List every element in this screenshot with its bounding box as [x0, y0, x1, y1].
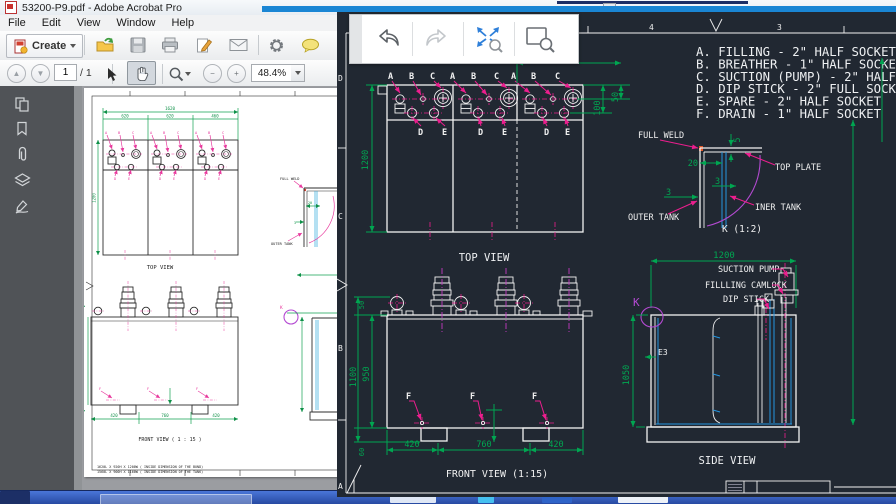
svg-text:A: A: [450, 72, 455, 82]
top-plate-label: TOP PLATE: [775, 163, 821, 173]
svg-text:A: A: [195, 131, 198, 135]
create-label: Create: [32, 40, 66, 52]
pdf-dim-420b: 420: [212, 413, 220, 418]
dim-side-width: 1200: [713, 251, 735, 261]
dim-front-h1: 1100: [349, 367, 359, 387]
print-button[interactable]: [157, 34, 183, 56]
magnifier-icon: [168, 66, 185, 82]
cad-top-view-ports: ABC ABC ABC DE DE DE: [388, 72, 571, 138]
create-caret-icon: [70, 44, 76, 48]
svg-text:E: E: [502, 128, 507, 138]
pdf-notes: 1620L X 920H X 1200W ( INSIDE DIMENSION …: [97, 465, 203, 474]
attachments-panel-button[interactable]: [7, 142, 37, 166]
zoom-out-button[interactable]: −: [203, 64, 222, 83]
window-title: 53200-P9.pdf - Adobe Acrobat Pro: [22, 2, 182, 14]
undo-icon: [372, 26, 402, 52]
undo-button[interactable]: [362, 19, 412, 59]
filling-camlock-label: FILLLING CAMLOCK: [705, 281, 788, 291]
dim-top-height: 1200: [361, 150, 371, 170]
legend-line: F. DRAIN - 1" HALF SOCKET: [696, 107, 882, 121]
pdf-f-label: F: [147, 387, 149, 391]
svg-text:E: E: [128, 177, 130, 181]
zoom-in-button[interactable]: +: [227, 64, 246, 83]
tools-button[interactable]: [263, 34, 289, 56]
svg-text:C: C: [555, 72, 560, 82]
pdf-dim-seg3: 460: [211, 114, 219, 119]
zone-letter: D: [338, 74, 343, 83]
svg-text:A: A: [150, 131, 153, 135]
detail-k-marker: K: [633, 296, 640, 309]
cad-top-view-label: TOP VIEW: [459, 252, 510, 264]
envelope-icon: [229, 38, 248, 52]
create-doc-icon: [13, 39, 28, 54]
inner-tank-label: INER TANK: [755, 203, 802, 213]
outer-tank-label: OUTER TANK: [628, 213, 680, 223]
create-button[interactable]: Create: [6, 34, 83, 58]
save-icon: [130, 37, 146, 53]
dim-20: 20: [688, 159, 698, 169]
menu-window[interactable]: Window: [108, 17, 163, 29]
dim-420b: 420: [548, 440, 563, 450]
svg-text:B: B: [409, 72, 414, 82]
screen: 53200-P9.pdf - Adobe Acrobat Pro File Ed…: [0, 0, 896, 504]
page-number-input[interactable]: [54, 64, 77, 81]
sign-pen-icon: [196, 37, 213, 53]
svg-text:D: D: [159, 177, 161, 181]
cad-side-view-label: SIDE VIEW: [699, 455, 757, 467]
menu-view[interactable]: View: [69, 17, 109, 29]
zone-number: 3: [777, 23, 782, 32]
pdf-file-icon: [5, 1, 17, 14]
svg-text:A: A: [388, 72, 393, 82]
pdf-dim-20: 20: [308, 201, 312, 205]
start-button[interactable]: [0, 491, 30, 504]
e3-label: E3: [658, 348, 668, 357]
pdf-outer-tank-label: OUTER TANK: [271, 242, 293, 246]
layers-panel-button[interactable]: [7, 168, 37, 192]
zoom-window-icon: [524, 25, 556, 53]
menu-edit[interactable]: Edit: [34, 17, 69, 29]
page-count: / 1: [80, 67, 92, 79]
pdf-dim-seg1: 620: [121, 114, 129, 119]
suction-pump-label: SUCTION PUMP: [718, 265, 779, 275]
svg-text:C: C: [177, 131, 179, 135]
svg-text:E: E: [565, 128, 570, 138]
zoom-window-button[interactable]: [515, 19, 565, 59]
svg-text:B: B: [208, 131, 210, 135]
svg-text:A: A: [105, 131, 108, 135]
toolbar-separator: [162, 64, 163, 84]
svg-text:C: C: [494, 72, 499, 82]
hand-icon: [135, 66, 149, 81]
paperclip-icon: [15, 146, 29, 163]
pdf-front-view: 420 760 420 F F F FRONT VIEW ( 1 :: [84, 281, 238, 443]
signatures-panel-button[interactable]: [7, 194, 37, 218]
toolbar-grip[interactable]: [350, 15, 362, 63]
pdf-dim-height: 1200: [92, 193, 97, 203]
pdf-dim-seg2: 620: [166, 114, 174, 119]
pdf-page[interactable]: 1620 620 620 460 1200 ABC ABC ABC DE DE …: [84, 88, 346, 477]
svg-text:B: B: [118, 131, 120, 135]
svg-text:E: E: [218, 177, 220, 181]
pdf-dim-420a: 420: [110, 413, 118, 418]
svg-text:D: D: [544, 128, 549, 138]
drain-crosses: [414, 417, 555, 429]
menu-file[interactable]: File: [0, 17, 34, 29]
svg-text:C: C: [430, 72, 435, 82]
zoom-extents-button[interactable]: [464, 19, 514, 59]
dip-stick-label: DIP STICK: [723, 295, 770, 305]
select-tool-button[interactable]: [100, 63, 122, 85]
zone-letter: C: [338, 212, 343, 221]
dim-50: 50: [611, 92, 621, 102]
cad-top-view: ABC ABC ABC DE DE DE 1200: [361, 50, 630, 264]
pdf-dim-3: 3: [294, 221, 296, 225]
svg-text:B: B: [531, 72, 536, 82]
zone-letter: B: [338, 344, 343, 353]
sign-button[interactable]: [191, 34, 217, 56]
pdf-f-label: F: [99, 387, 101, 391]
svg-text:E: E: [442, 128, 447, 138]
pdf-k-label: K: [280, 305, 283, 311]
pdf-f-label: F: [196, 387, 198, 391]
cad-viewer-window[interactable]: 5 4 3 D C B A A. FILLING - 2" HALF SOCKE…: [337, 11, 896, 497]
cad-window-title-edge[interactable]: [262, 6, 896, 12]
cad-legend: A. FILLING - 2" HALF SOCKET B. BREATHER …: [696, 45, 896, 142]
pdf-note-1: 1620L X 920H X 1200W ( INSIDE DIMENSION …: [97, 465, 203, 469]
dim-100: 100: [593, 100, 603, 115]
toolbar-separator: [84, 35, 85, 55]
dim-3a: 3: [715, 177, 720, 187]
pages-panel-button[interactable]: [7, 92, 37, 116]
redo-icon: [423, 26, 453, 52]
pdf-top-view-label: TOP VIEW: [147, 265, 174, 271]
dim-760: 760: [476, 440, 491, 450]
svg-text:C: C: [132, 131, 134, 135]
svg-text:B: B: [163, 131, 165, 135]
svg-text:D: D: [114, 177, 116, 181]
zoom-level-dropdown[interactable]: [291, 64, 305, 82]
svg-text:D: D: [478, 128, 483, 138]
signature-icon: [14, 199, 30, 214]
redo-button[interactable]: [413, 19, 463, 59]
printer-icon: [161, 37, 179, 53]
zoom-extents-icon: [473, 25, 505, 53]
marquee-zoom-button[interactable]: [167, 63, 191, 85]
dim-5: 5: [733, 137, 743, 142]
dim-front-bottom: 60: [358, 448, 366, 456]
open-button[interactable]: [92, 34, 118, 56]
dim-3b: 3: [666, 188, 671, 198]
pdf-top-view: 1620 620 620 460 1200 ABC ABC ABC DE DE …: [92, 106, 239, 271]
menu-help[interactable]: Help: [163, 17, 202, 29]
zoom-dropdown-caret-icon: [295, 71, 301, 75]
zoom-level-text: 48.4%: [258, 68, 286, 79]
cad-drawing: 5 4 3 D C B A A. FILLING - 2" HALF SOCKE…: [337, 11, 896, 497]
next-page-button[interactable]: ▼: [31, 64, 50, 83]
cad-detail-k-label: K (1:2): [722, 224, 762, 235]
panel-splitter[interactable]: [74, 86, 82, 490]
bookmarks-panel-button[interactable]: [7, 116, 37, 140]
gear-icon: [268, 37, 285, 54]
dim-front-top: 50: [358, 301, 366, 309]
select-arrow-icon: [106, 67, 117, 82]
save-button[interactable]: [125, 34, 151, 56]
pdf-note-2: 1560L X 900H X 1160W ( INSIDE DIMENSION …: [97, 470, 203, 474]
pages-icon: [14, 97, 30, 112]
email-button[interactable]: [225, 34, 251, 56]
prev-page-button[interactable]: ▲: [7, 64, 26, 83]
cad-front-view: F F F 42: [349, 268, 592, 480]
comment-bubble-icon: [301, 38, 320, 53]
svg-text:D: D: [204, 177, 206, 181]
svg-text:C: C: [222, 131, 224, 135]
taskbar-item[interactable]: [100, 494, 252, 504]
dim-front-h2: 950: [362, 366, 372, 381]
navigation-sidebar: [0, 86, 75, 490]
pdf-front-view-label: FRONT VIEW ( 1 : 15 ): [138, 437, 201, 443]
open-folder-icon: [95, 37, 115, 53]
pdf-dim-total: 1620: [165, 106, 176, 111]
svg-text:B: B: [471, 72, 476, 82]
svg-text:A: A: [511, 72, 516, 82]
pdf-drawing: 1620 620 620 460 1200 ABC ABC ABC DE DE …: [84, 88, 346, 477]
cad-front-view-label: FRONT VIEW (1:15): [446, 469, 548, 480]
zoom-level-value[interactable]: 48.4%: [251, 64, 293, 82]
svg-text:D: D: [418, 128, 423, 138]
bookmark-icon: [15, 121, 29, 136]
comment-button[interactable]: [297, 34, 323, 56]
cad-title-block: [726, 481, 896, 493]
pdf-detail-k: FULL WELD 20 3 OUTER TANK: [271, 177, 346, 275]
background-window-edge: [557, 1, 748, 4]
full-weld-label: FULL WELD: [638, 131, 684, 141]
cad-floating-toolbar: [349, 14, 579, 64]
dim-side-height: 1050: [622, 365, 632, 385]
toolbar-separator: [258, 35, 259, 55]
zone-number: 4: [649, 23, 654, 32]
pdf-full-weld-label: FULL WELD: [280, 177, 299, 181]
pdf-sheet-frame: [86, 91, 346, 476]
svg-text:E: E: [173, 177, 175, 181]
zoom-tool-caret-icon: [185, 72, 191, 76]
hand-tool-button[interactable]: [127, 61, 156, 85]
layers-icon: [14, 173, 31, 187]
cad-detail-k: FULL WELD 20 3 3 5 TOP PLATE INER TANK: [628, 131, 821, 235]
zone-letter: A: [338, 482, 343, 491]
pdf-dim-760: 760: [161, 413, 169, 418]
